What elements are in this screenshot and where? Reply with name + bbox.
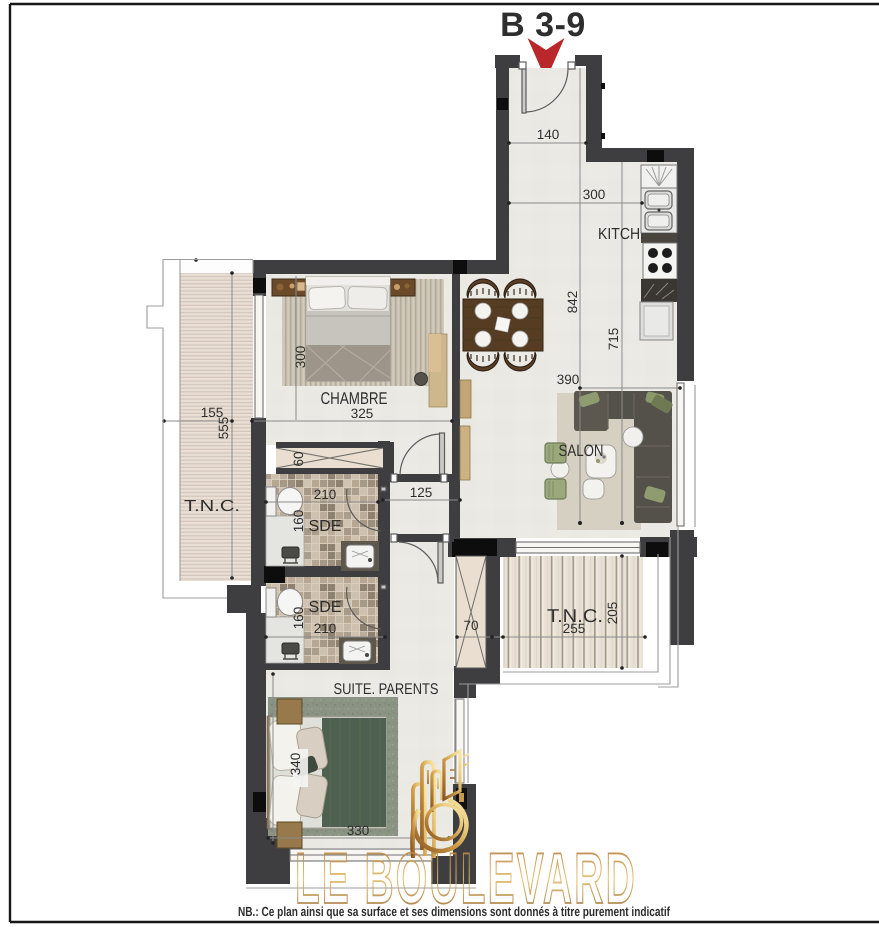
svg-text:340: 340 (288, 753, 303, 776)
svg-text:715: 715 (606, 328, 621, 351)
svg-text:SDE: SDE (309, 599, 342, 616)
svg-text:SALON: SALON (559, 442, 604, 460)
svg-text:300: 300 (293, 346, 308, 369)
svg-text:SDE: SDE (309, 518, 342, 535)
svg-text:SUITE. PARENTS: SUITE. PARENTS (334, 681, 439, 698)
svg-text:125: 125 (410, 485, 433, 500)
svg-text:390: 390 (557, 372, 580, 387)
svg-text:842: 842 (565, 291, 580, 314)
svg-text:210: 210 (314, 621, 337, 636)
svg-text:60: 60 (291, 451, 306, 466)
svg-text:T.N.C.: T.N.C. (184, 498, 240, 515)
svg-text:160: 160 (291, 607, 306, 630)
svg-text:325: 325 (351, 406, 374, 421)
svg-text:160: 160 (291, 510, 306, 533)
svg-text:300: 300 (583, 187, 606, 202)
svg-text:205: 205 (605, 602, 620, 625)
svg-text:140: 140 (537, 127, 560, 142)
svg-text:555: 555 (216, 417, 231, 440)
svg-text:CHAMBRE: CHAMBRE (321, 389, 388, 408)
svg-text:70: 70 (463, 618, 478, 633)
svg-text:T.N.C.: T.N.C. (547, 605, 603, 626)
svg-text:B 3-9: B 3-9 (500, 6, 586, 44)
svg-text:330: 330 (347, 823, 370, 838)
svg-text:210: 210 (314, 487, 337, 502)
svg-text:NB.: Ce plan ainsi que sa surf: NB.: Ce plan ainsi que sa surface et ses… (238, 904, 670, 919)
svg-text:KITCH.: KITCH. (598, 226, 644, 243)
